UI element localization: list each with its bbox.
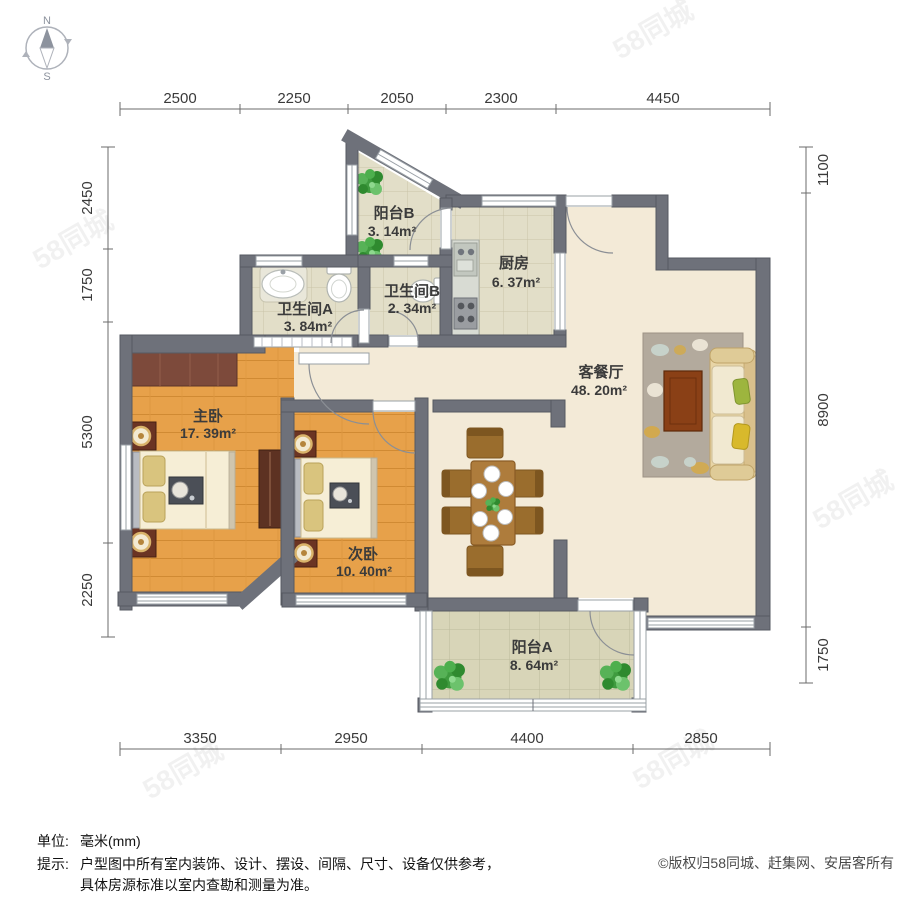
tip-line1: 户型图中所有室内装饰、设计、摆设、间隔、尺寸、设备仅供参考， (80, 856, 500, 872)
kitchen-top-window (482, 196, 556, 206)
living-bottom-window (648, 618, 754, 628)
tip-label: 提示: (37, 856, 69, 872)
dim-left-4: 2250 (79, 573, 96, 606)
master-bottom-window (137, 594, 227, 604)
floorplan-canvas: 阳台B 3. 14m² 厨房 6. 37m² 卫生间A 3. 84m² 卫生间B… (0, 0, 900, 900)
balcony-a-bottom-rail (420, 699, 646, 711)
dim-right-1: 1100 (815, 154, 832, 186)
dim-top-5: 4450 (646, 90, 679, 107)
master-bed (133, 451, 235, 529)
kitchen-glass-partition (555, 253, 565, 330)
bath-a-bottom-window (254, 337, 352, 347)
label-bath-b: 卫生间B (384, 282, 440, 300)
kitchen-counter (452, 240, 479, 345)
dim-left-2: 1750 (79, 268, 96, 301)
master-dresser (259, 450, 281, 528)
footer: 单位: 毫米(mm) 提示: 户型图中所有室内装饰、设计、摆设、间隔、尺寸、设备… (37, 833, 894, 893)
balcony-b-left-window (347, 165, 357, 235)
dim-right-2: 8900 (815, 393, 832, 426)
dim-top-1: 2500 (163, 90, 196, 107)
label-master: 主卧 (193, 407, 223, 425)
tip-line2: 具体房源标准以室内查勘和测量为准。 (80, 877, 318, 893)
dim-bottom-2: 2950 (334, 730, 367, 747)
balcony-a-right-rail (634, 611, 646, 699)
master-wardrobe (130, 353, 237, 386)
dim-top-3: 2050 (380, 90, 413, 107)
area-second: 10. 40m² (336, 563, 392, 579)
unit-label: 单位: (37, 833, 69, 849)
watermark-2: 58同城 (28, 205, 119, 275)
area-bath-a: 3. 84m² (284, 318, 333, 334)
bath-a-top-window (256, 256, 302, 266)
area-balcony-a: 8. 64m² (510, 657, 559, 673)
watermark-4: 58同城 (628, 725, 719, 795)
dim-top-4: 2300 (484, 90, 517, 107)
label-balcony-a: 阳台A (512, 638, 553, 656)
label-living: 客餐厅 (577, 363, 623, 381)
compass-needle-south (40, 48, 54, 68)
balcony-a-left-rail (420, 611, 432, 699)
sofa-pillow-green (732, 378, 750, 405)
label-bath-a: 卫生间A (277, 300, 333, 318)
area-kitchen: 6. 37m² (492, 274, 541, 290)
unit-value: 毫米(mm) (80, 833, 141, 849)
master-left-window (121, 445, 131, 530)
label-second: 次卧 (348, 545, 378, 563)
sofa (710, 348, 756, 480)
sofa-pillow-yellow (731, 423, 750, 450)
compass-arrow-right (64, 39, 72, 45)
watermark-1: 58同城 (608, 0, 699, 65)
copyright-text: ©版权归58同城、赶集网、安居客所有 (658, 855, 894, 871)
second-bed (295, 458, 377, 538)
dim-left-3: 5300 (79, 415, 96, 448)
compass-north-label: N (43, 15, 51, 27)
compass-needle-north (40, 28, 54, 48)
dim-bottom-3: 4400 (510, 730, 543, 747)
label-balcony-b: 阳台B (374, 204, 415, 222)
area-balcony-b: 3. 14m² (368, 223, 417, 239)
dim-top-2: 2250 (277, 90, 310, 107)
compass: N S (22, 15, 72, 83)
compass-arrow-left (22, 51, 30, 57)
watermark-3: 58同城 (808, 465, 899, 535)
second-nightstand-bottom (292, 540, 317, 567)
bath-a-sink (260, 265, 307, 302)
bath-a-toilet (327, 264, 351, 302)
area-living: 48. 20m² (571, 382, 627, 398)
floorplan-page: 阳台B 3. 14m² 厨房 6. 37m² 卫生间A 3. 84m² 卫生间B… (0, 0, 900, 900)
area-master: 17. 39m² (180, 425, 236, 441)
dim-right-3: 1750 (815, 638, 832, 671)
area-bath-b: 2. 34m² (388, 300, 437, 316)
bath-b-top-window (394, 256, 428, 266)
compass-south-label: S (43, 71, 50, 83)
second-bottom-window (296, 595, 406, 605)
label-kitchen: 厨房 (499, 254, 529, 272)
